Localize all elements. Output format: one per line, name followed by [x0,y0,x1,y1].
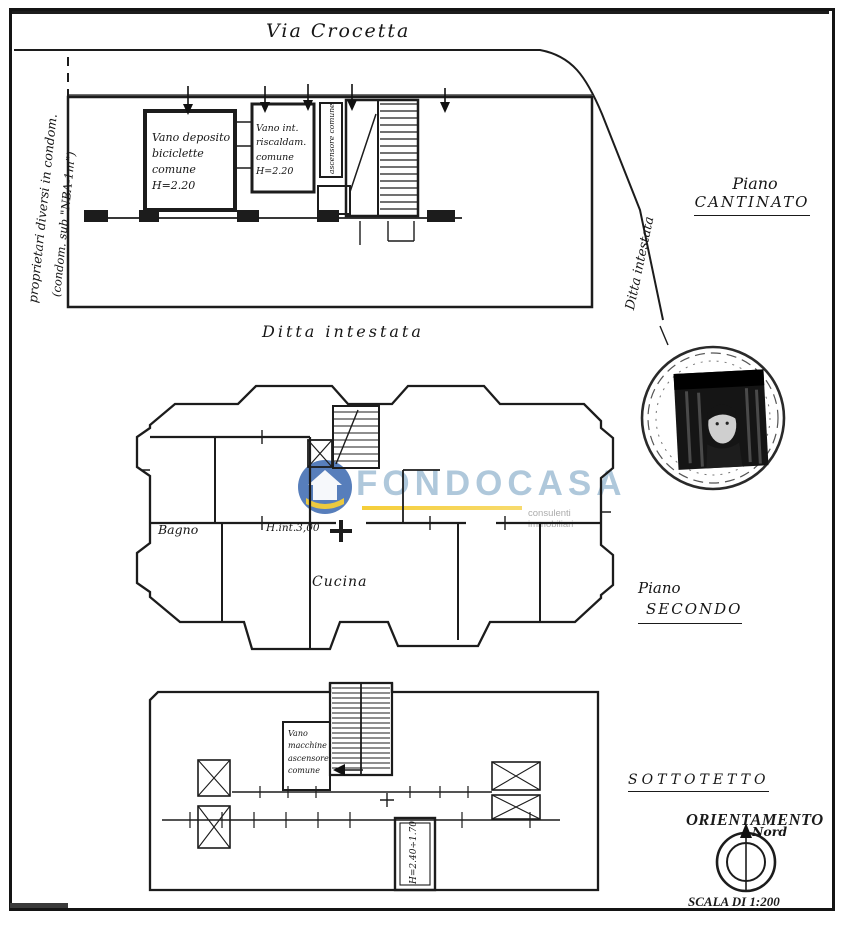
room-label-bagno: Bagno [158,521,198,539]
room-label-cucina: Cucina [312,572,367,592]
room-label-macchine-ascensore: Vano macchine ascensore comune [288,728,328,778]
street-label: Via Crocetta [266,18,410,46]
north-label: Nord [752,823,787,841]
cantinato-caption: Ditta intestata [262,320,424,343]
floor-plan-sheet: FONDOCASA consulenti immobiliari [0,0,841,925]
scale-label: SCALA DI 1:200 [688,893,780,912]
corridor-height-label: H.int.3,00 [266,521,320,536]
room-label-ascensore: ascensore comune [327,104,338,175]
room-label-biciclette: Vano deposito biciclette comune H=2.20 [152,130,238,194]
sottotetto-title: SOTTOTETTO [628,770,769,792]
cantinato-title-line2: CANTINATO [694,192,810,216]
secondo-title-line1: Piano [638,579,681,597]
secondo-title-line2: SECONDO [646,600,742,618]
scan-artifact [10,903,68,908]
attic-height-note: H=2.40÷1.70 [408,821,421,884]
secondo-title: Piano SECONDO [638,534,742,624]
room-label-riscaldamento: Vano int. riscaldam. comune H=2.20 [256,122,316,179]
